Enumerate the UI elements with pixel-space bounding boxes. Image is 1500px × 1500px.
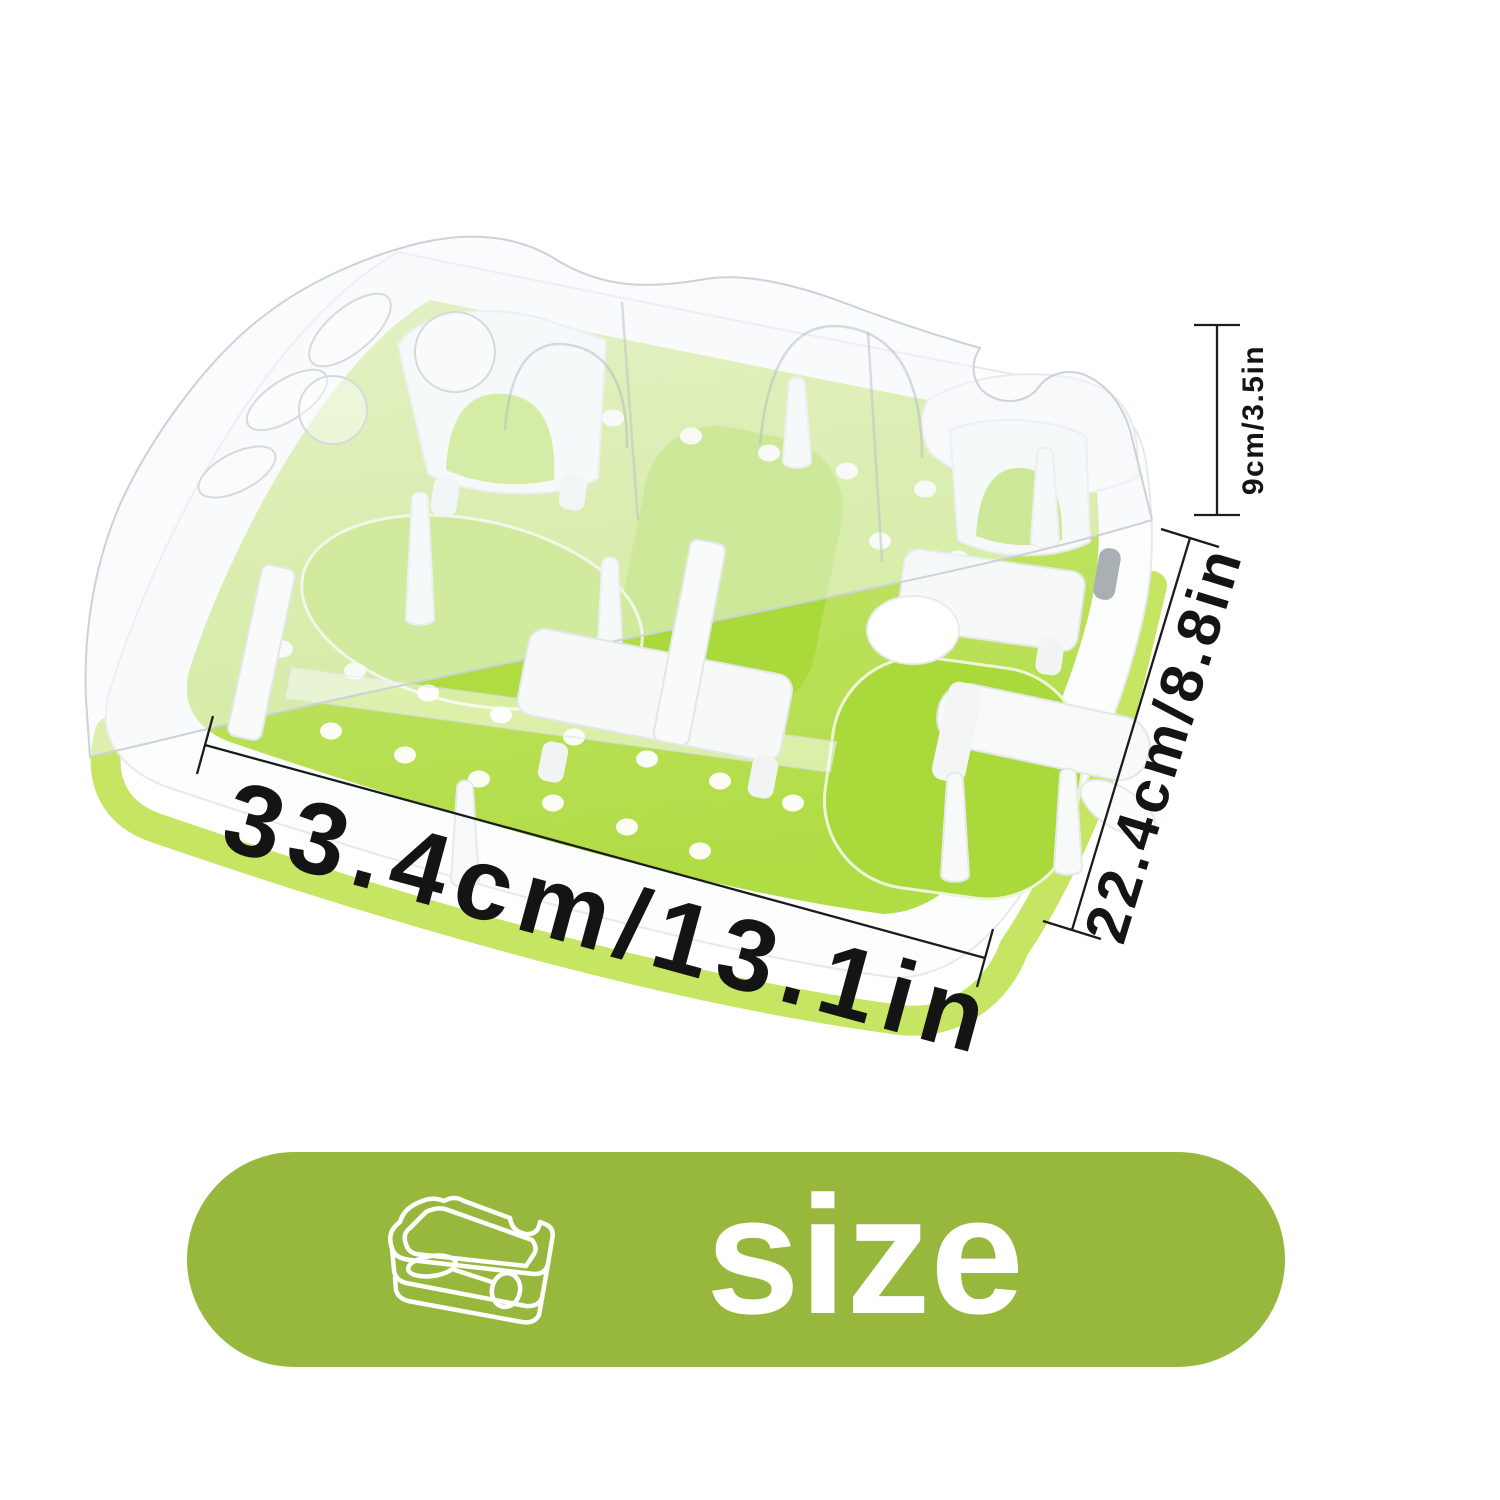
size-badge: size (187, 1152, 1285, 1367)
size-infographic-canvas: 33.4cm/13.1in 22.4cm/8.8in 9cm/3.5in siz… (0, 0, 1500, 1500)
height-dimension-line (1194, 325, 1240, 515)
size-badge-label: size (706, 1170, 1024, 1338)
white-dome (867, 596, 959, 664)
tray-outline-icon (380, 1186, 560, 1346)
height-dimension-label: 9cm/3.5in (1239, 345, 1269, 495)
